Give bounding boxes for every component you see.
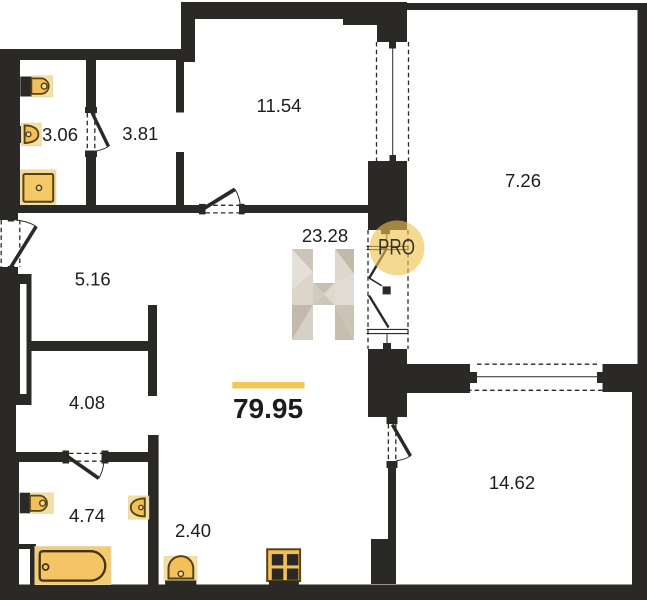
svg-text:4.08: 4.08	[69, 392, 105, 413]
svg-text:3.06: 3.06	[42, 124, 78, 145]
svg-text:79.95: 79.95	[233, 393, 303, 424]
svg-text:11.54: 11.54	[257, 95, 302, 116]
svg-text:4.74: 4.74	[69, 505, 105, 526]
svg-text:3.81: 3.81	[122, 123, 158, 144]
svg-text:7.26: 7.26	[505, 170, 541, 191]
svg-text:PRO: PRO	[378, 235, 415, 260]
svg-text:5.16: 5.16	[75, 269, 111, 290]
svg-text:14.62: 14.62	[489, 472, 535, 493]
svg-text:23.28: 23.28	[302, 225, 348, 246]
svg-text:2.40: 2.40	[175, 520, 211, 541]
